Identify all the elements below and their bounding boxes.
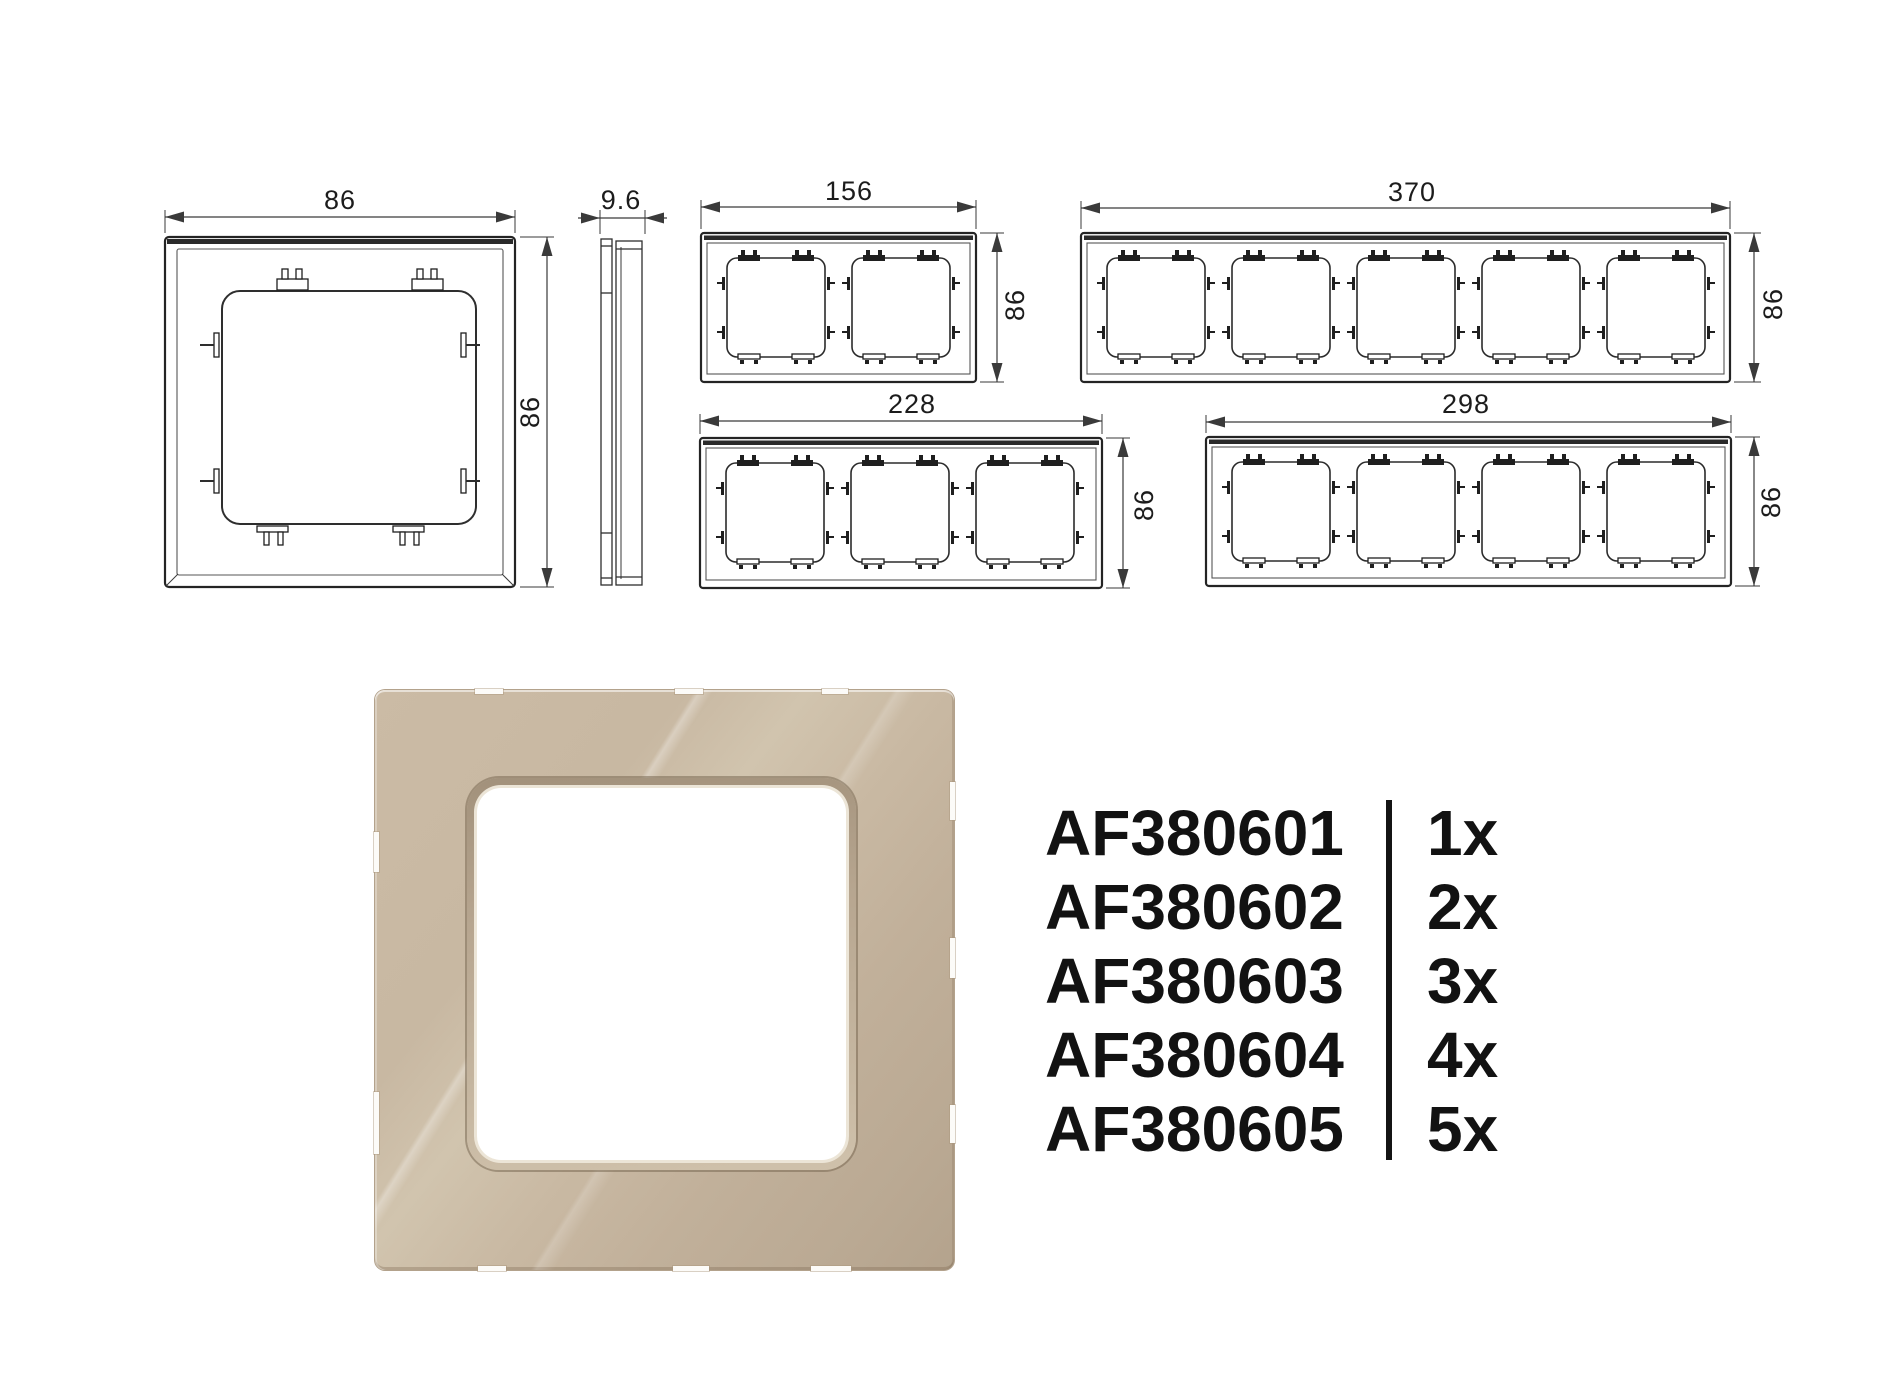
product-code: AF380603 [1045,944,1427,1018]
edge-notch [374,1092,379,1154]
drawing-five-gang-frame [1081,233,1730,382]
product-render-single-frame [375,690,954,1270]
product-code: AF380604 [1045,1018,1427,1092]
dim-label-four-gang-width: 298 [1442,389,1490,419]
product-code-row: AF380602 2x [1045,870,1498,944]
edge-notch [374,832,379,872]
product-code-row: AF380604 4x [1045,1018,1498,1092]
gang-quantity: 1x [1427,796,1498,870]
edge-notch [950,938,955,978]
product-code-row: AF380603 3x [1045,944,1498,1018]
edge-notch [478,1266,506,1271]
dim-label-single-height: 86 [515,396,545,428]
edge-notch [950,782,955,820]
edge-notch [822,689,848,694]
product-code-row: AF380605 5x [1045,1092,1498,1166]
gang-quantity: 5x [1427,1092,1498,1166]
edge-notch [675,689,703,694]
edge-notch [950,1105,955,1143]
frame-opening [477,788,846,1160]
dim-label-depth: 9.6 [601,185,642,215]
dim-label-two-gang-width: 156 [825,176,873,206]
edge-notch [475,689,503,694]
dim-label-three-gang-height: 86 [1129,489,1159,521]
dim-label-single-width: 86 [324,185,356,215]
product-code-list: AF380601 1x AF380602 2x AF380603 3x AF38… [1045,796,1498,1166]
dim-label-five-gang-height: 86 [1758,288,1788,320]
gang-quantity: 4x [1427,1018,1498,1092]
gang-quantity: 3x [1427,944,1498,1018]
drawing-side-profile [601,239,642,585]
edge-notch [811,1266,851,1271]
dim-label-three-gang-width: 228 [888,389,936,419]
catalog-page: 86 86 9.6 156 86 370 86 228 86 298 86 AF… [0,0,1900,1400]
dim-label-five-gang-width: 370 [1388,177,1436,207]
gang-quantity: 2x [1427,870,1498,944]
drawing-three-gang-frame [700,438,1102,588]
drawing-four-gang-frame [1206,437,1731,586]
product-code: AF380602 [1045,870,1427,944]
product-code: AF380605 [1045,1092,1427,1166]
dim-label-four-gang-height: 86 [1756,486,1786,518]
drawing-single-frame [165,237,515,587]
edge-notch [673,1266,709,1271]
dim-label-two-gang-height: 86 [1000,289,1030,321]
product-code-row: AF380601 1x [1045,796,1498,870]
code-qty-divider [1386,800,1392,1160]
product-code: AF380601 [1045,796,1427,870]
frame-opening-bezel [467,778,856,1170]
drawing-two-gang-frame [701,233,976,382]
